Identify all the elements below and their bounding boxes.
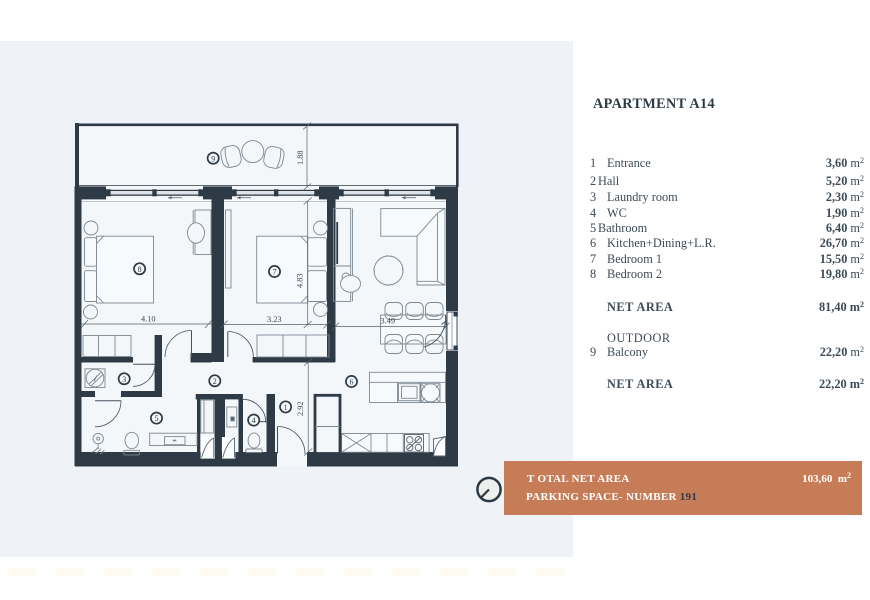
svg-text:4.83: 4.83 xyxy=(296,273,305,288)
svg-text:3: 3 xyxy=(122,375,126,384)
svg-text:7: 7 xyxy=(273,268,277,277)
svg-text:5: 5 xyxy=(155,414,159,423)
svg-text:1: 1 xyxy=(284,403,288,412)
svg-text:4: 4 xyxy=(252,416,256,425)
svg-text:2: 2 xyxy=(213,377,217,386)
svg-text:4.10: 4.10 xyxy=(141,315,156,324)
svg-text:1.88: 1.88 xyxy=(296,150,305,165)
svg-text:9: 9 xyxy=(211,154,215,163)
svg-text:3.49: 3.49 xyxy=(381,317,396,326)
svg-text:3.23: 3.23 xyxy=(267,315,282,324)
svg-text:6: 6 xyxy=(350,378,354,387)
svg-text:8: 8 xyxy=(138,265,142,274)
svg-text:2.92: 2.92 xyxy=(296,401,305,416)
